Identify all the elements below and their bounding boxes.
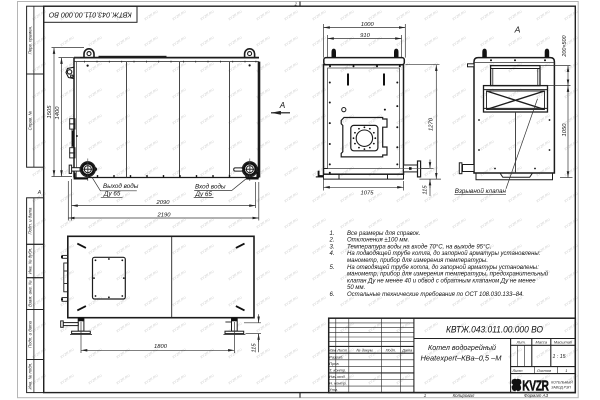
svg-text:Нач.отд.: Нач.отд. [329,374,345,379]
svg-text:Справ. №: Справ. № [28,110,33,130]
svg-text:манометр, прибор для измерения: манометр, прибор для измерения температу… [347,271,549,278]
svg-text:Лист: Лист [511,368,523,373]
svg-text:Утв.: Утв. [329,387,338,392]
svg-text:А: А [37,190,42,196]
svg-text:910: 910 [360,33,370,39]
svg-text:115: 115 [252,343,258,353]
svg-text:Выход воды: Выход воды [103,182,139,190]
svg-text:Ду 65: Ду 65 [195,191,213,198]
svg-text:Взрывной клапан: Взрывной клапан [455,187,507,195]
svg-text:Перв. примен.: Перв. примен. [28,26,33,55]
svg-text:1050: 1050 [562,123,568,137]
svg-text:Листов: Листов [536,368,551,373]
svg-text:КВТЖ.043.011.00.000 ВО: КВТЖ.043.011.00.000 ВО [49,10,132,19]
svg-text:Лист: Лист [336,348,348,353]
svg-text:115: 115 [423,185,429,195]
svg-text:Подп. и дата: Подп. и дата [28,320,33,348]
svg-text:Масса: Масса [536,339,548,344]
svg-text:Лит.: Лит. [516,339,526,344]
svg-text:Взам. инв. №: Взам. инв. № [28,280,33,307]
svg-text:Т. контр.: Т. контр. [329,367,346,372]
svg-text:KVZR: KVZR [522,378,549,394]
svg-text:3.: 3. [329,244,334,250]
svg-text:На подводящей трубе котла, до: На подводящей трубе котла, до запорной а… [347,250,541,257]
svg-text:1270: 1270 [428,117,434,131]
svg-text:1.: 1. [329,231,334,237]
svg-text:5.: 5. [329,265,334,271]
svg-text:№ докум.: № докум. [356,348,373,353]
svg-text:1400: 1400 [55,106,61,120]
svg-text:манометр, прибор для измерения: манометр, прибор для измерения температу… [347,258,488,264]
svg-text:Вход воды: Вход воды [195,182,226,190]
svg-text:4.: 4. [329,251,334,257]
svg-text:Масштаб: Масштаб [554,339,573,344]
svg-text:2.: 2. [328,238,334,244]
svg-text:2190: 2190 [157,212,172,218]
svg-text:Инв. № дубл.: Инв. № дубл. [28,248,33,274]
svg-text:200×500: 200×500 [562,35,568,57]
svg-text:Все размеры для справок.: Все размеры для справок. [347,231,421,237]
svg-text:1505: 1505 [47,105,53,119]
svg-text:КВТЖ.043.011.00.000 ВО: КВТЖ.043.011.00.000 ВО [446,323,544,334]
svg-text:КОТЕЛЬНЫЙ: КОТЕЛЬНЫЙ [551,381,573,385]
svg-text:На отводящей трубе котла, до з: На отводящей трубе котла, до запорной ар… [347,264,539,271]
svg-text:Разраб.: Разраб. [329,354,343,359]
svg-text:Температура воды на входе 70°С: Температура воды на входе 70°С, на выход… [347,244,491,250]
svg-text:клапан Ду не менее 40 и обвод: клапан Ду не менее 40 и обвод с обратным… [347,278,536,284]
svg-text:Копировал: Копировал [453,393,475,398]
svg-text:Н. контр.: Н. контр. [329,381,347,386]
svg-text:1800: 1800 [154,344,168,350]
svg-text:1000: 1000 [361,22,375,28]
svg-text:Формат А3: Формат А3 [524,393,549,398]
svg-text:Остальные технические требован: Остальные технические требования по ОСТ … [347,292,524,298]
svg-text:Котел водогрейный: Котел водогрейный [428,343,496,352]
svg-text:А: А [514,25,521,35]
svg-text:Подп. и дата: Подп. и дата [28,207,33,235]
svg-text:Отклонения ±100 мм.: Отклонения ±100 мм. [347,238,409,244]
svg-text:2090: 2090 [156,200,171,206]
svg-text:Пров.: Пров. [329,361,339,366]
svg-text:6.: 6. [329,292,334,298]
svg-text:50 мм.: 50 мм. [347,285,365,291]
svg-text:1 : 15: 1 : 15 [553,354,566,360]
svg-text:Heatexpert–КВа–0,5 –М: Heatexpert–КВа–0,5 –М [421,353,502,362]
svg-text:Изм: Изм [329,348,337,353]
svg-text:Подп.: Подп. [386,348,396,353]
svg-text:Ду 65: Ду 65 [103,191,121,198]
svg-text:1: 1 [565,368,567,373]
svg-text:1075: 1075 [361,191,375,197]
svg-text:А: А [279,101,286,110]
svg-text:ЗАВОД РЭП: ЗАВОД РЭП [551,386,571,390]
svg-text:Дата: Дата [401,348,413,353]
svg-text:Инв. № подл.: Инв. № подл. [28,363,33,390]
